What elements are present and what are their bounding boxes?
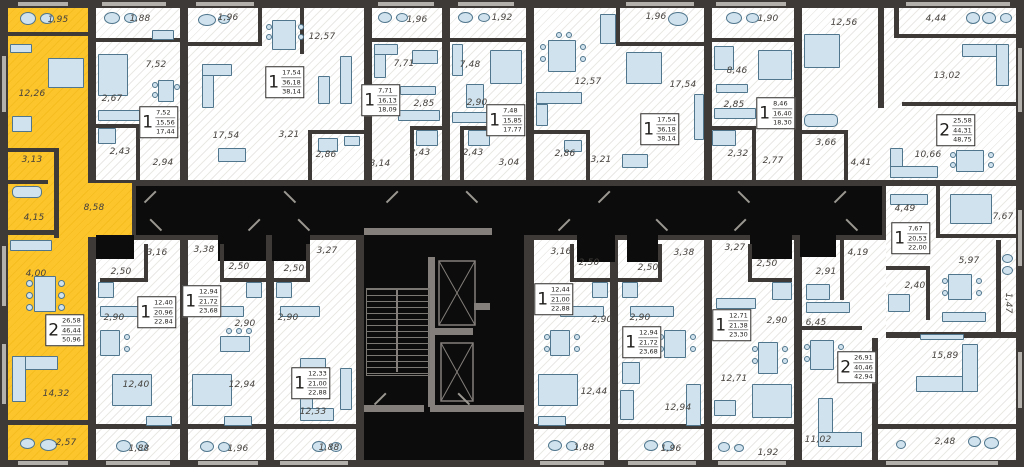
area-values: 12,7121,3823,30 bbox=[728, 311, 749, 339]
room-area-label: 2,50 bbox=[284, 264, 305, 274]
area-value: 12,40 bbox=[153, 298, 174, 308]
room-area-label: 12,57 bbox=[575, 77, 602, 87]
room-count: 1 bbox=[140, 300, 151, 324]
room-area-label: 8,58 bbox=[84, 203, 105, 213]
area-value: 17,77 bbox=[502, 125, 523, 134]
apartment-1room-k-info-box[interactable]: 112,9421,7223,68 bbox=[182, 285, 221, 317]
area-value: 17,54 bbox=[656, 115, 677, 125]
room-area-label: 4,19 bbox=[848, 248, 869, 258]
area-value: 21,38 bbox=[728, 321, 749, 331]
room-area-label: 2,43 bbox=[110, 147, 131, 157]
room-area-label: 12,57 bbox=[309, 32, 336, 42]
room-area-label: 2,91 bbox=[816, 267, 837, 277]
room-area-label: 2,50 bbox=[111, 267, 132, 277]
room-area-label: 17,54 bbox=[670, 80, 697, 90]
area-value: 22,88 bbox=[307, 388, 328, 397]
room-area-label: 2,43 bbox=[410, 148, 431, 158]
area-value: 26,91 bbox=[853, 353, 874, 363]
room-area-label: 2,86 bbox=[316, 150, 337, 160]
apartment-1room-l-info-box[interactable]: 112,3321,0022,88 bbox=[291, 367, 330, 399]
area-value: 38,14 bbox=[656, 134, 677, 143]
room-area-label: 2,94 bbox=[153, 158, 174, 168]
room-area-label: 14,32 bbox=[43, 389, 70, 399]
room-area-label: 3,04 bbox=[499, 158, 520, 168]
room-area-label: 3,27 bbox=[317, 246, 338, 256]
area-value: 48,75 bbox=[952, 135, 973, 144]
room-area-label: 7,48 bbox=[460, 60, 481, 70]
room-area-label: 12,56 bbox=[831, 18, 858, 28]
room-area-label: 12,33 bbox=[300, 407, 327, 417]
apartment-2room-a-info-box[interactable]: 225,5844,3148,75 bbox=[936, 114, 975, 146]
room-area-label: 3,16 bbox=[551, 247, 572, 257]
room-area-label: 3,21 bbox=[279, 130, 300, 140]
room-area-label: 5,97 bbox=[959, 256, 980, 266]
room-count: 2 bbox=[840, 355, 851, 379]
room-area-label: 12,94 bbox=[229, 380, 256, 390]
area-value: 7,67 bbox=[907, 224, 928, 234]
area-value: 20,96 bbox=[153, 308, 174, 318]
room-area-label: 2,85 bbox=[724, 100, 745, 110]
area-value: 23,68 bbox=[198, 306, 219, 315]
room-area-label: 2,90 bbox=[630, 313, 651, 323]
area-value: 18,30 bbox=[772, 118, 793, 127]
room-area-label: 2,40 bbox=[905, 281, 926, 291]
room-area-label: 2,90 bbox=[235, 319, 256, 329]
area-values: 7,5215,5617,44 bbox=[155, 108, 176, 136]
room-area-label: 2,67 bbox=[102, 94, 123, 104]
area-value: 21,00 bbox=[307, 379, 328, 389]
room-count: 1 bbox=[759, 101, 770, 125]
area-value: 20,53 bbox=[907, 234, 928, 244]
room-area-label: 2,50 bbox=[638, 263, 659, 273]
room-area-label: 4,49 bbox=[895, 204, 916, 214]
area-values: 7,4815,8517,77 bbox=[502, 106, 523, 134]
apartment-1room-b-info-box[interactable]: 117,5436,1838,14 bbox=[265, 66, 304, 98]
area-value: 15,85 bbox=[502, 116, 523, 126]
room-area-label: 1,92 bbox=[758, 448, 779, 458]
area-value: 16,13 bbox=[377, 96, 398, 106]
area-value: 18,09 bbox=[377, 105, 398, 114]
room-count: 1 bbox=[715, 313, 726, 337]
area-value: 50,96 bbox=[61, 335, 82, 344]
area-values: 8,4616,4018,30 bbox=[772, 99, 793, 127]
area-value: 7,71 bbox=[377, 86, 398, 96]
area-value: 16,40 bbox=[772, 109, 793, 119]
area-values: 25,5844,3148,75 bbox=[952, 116, 973, 144]
room-area-label: 2,90 bbox=[467, 98, 488, 108]
area-values: 12,4020,9622,84 bbox=[153, 298, 174, 326]
room-area-label: 6,45 bbox=[806, 318, 827, 328]
area-value: 21,72 bbox=[198, 297, 219, 307]
area-value: 21,72 bbox=[638, 338, 659, 348]
area-value: 40,46 bbox=[853, 363, 874, 373]
apartment-1room-m-info-box[interactable]: 112,4020,9622,84 bbox=[137, 296, 176, 328]
room-area-label: 2,90 bbox=[278, 313, 299, 323]
room-count: 2 bbox=[48, 318, 59, 342]
area-value: 7,48 bbox=[502, 106, 523, 116]
room-area-label: 1,88 bbox=[129, 444, 150, 454]
labels-layer: 1,9512,263,134,158,584,0014,322,57226,58… bbox=[0, 0, 1024, 467]
room-area-label: 8,46 bbox=[727, 66, 748, 76]
area-value: 15,56 bbox=[155, 118, 176, 128]
apartment-1room-g-info-box[interactable]: 17,6720,5322,00 bbox=[891, 222, 930, 254]
room-area-label: 2,86 bbox=[555, 149, 576, 159]
room-area-label: 7,71 bbox=[394, 59, 415, 69]
floor-plan: 1,9512,263,134,158,584,0014,322,57226,58… bbox=[0, 0, 1024, 467]
area-value: 21,00 bbox=[550, 295, 571, 305]
room-area-label: 2,85 bbox=[414, 99, 435, 109]
area-value: 25,58 bbox=[952, 116, 973, 126]
apartment-1room-j-info-box[interactable]: 112,9421,7223,68 bbox=[622, 326, 661, 358]
room-area-label: 2,50 bbox=[229, 262, 250, 272]
area-value: 17,54 bbox=[281, 68, 302, 78]
room-count: 1 bbox=[294, 371, 305, 395]
area-value: 12,33 bbox=[307, 369, 328, 379]
room-area-label: 3,66 bbox=[816, 138, 837, 148]
room-area-label: 12,71 bbox=[721, 374, 748, 384]
area-value: 38,14 bbox=[281, 87, 302, 96]
room-area-label: 2,48 bbox=[935, 437, 956, 447]
room-area-label: 1,96 bbox=[407, 15, 428, 25]
room-area-label: 1,96 bbox=[661, 444, 682, 454]
room-area-label: 3,21 bbox=[591, 155, 612, 165]
apartment-1room-d-info-box[interactable]: 17,4815,8517,77 bbox=[486, 104, 525, 136]
room-count: 1 bbox=[537, 287, 548, 311]
room-count: 1 bbox=[625, 330, 636, 354]
area-value: 22,84 bbox=[153, 317, 174, 326]
area-values: 12,9421,7223,68 bbox=[638, 328, 659, 356]
apartment-1room-i-info-box[interactable]: 112,4421,0022,88 bbox=[534, 283, 573, 315]
room-area-label: 10,66 bbox=[915, 150, 942, 160]
area-value: 17,44 bbox=[155, 127, 176, 136]
room-area-label: 1,92 bbox=[492, 13, 513, 23]
room-area-label: 1,96 bbox=[218, 13, 239, 23]
area-values: 12,3321,0022,88 bbox=[307, 369, 328, 397]
room-area-label: 3,38 bbox=[674, 248, 695, 258]
area-value: 26,58 bbox=[61, 316, 82, 326]
room-area-label: 1,47 bbox=[1003, 293, 1013, 314]
room-count: 1 bbox=[643, 117, 654, 141]
apartment-1room-f-info-box[interactable]: 18,4616,4018,30 bbox=[756, 97, 795, 129]
room-area-label: 1,90 bbox=[758, 14, 779, 24]
room-area-label: 3,38 bbox=[194, 245, 215, 255]
room-area-label: 2,32 bbox=[728, 149, 749, 159]
area-value: 23,68 bbox=[638, 347, 659, 356]
room-count: 2 bbox=[939, 118, 950, 142]
room-area-label: 1,96 bbox=[228, 444, 249, 454]
room-area-label: 1,96 bbox=[646, 12, 667, 22]
room-area-label: 12,44 bbox=[581, 387, 608, 397]
room-count: 1 bbox=[364, 88, 375, 112]
room-area-label: 2,43 bbox=[463, 148, 484, 158]
room-area-label: 17,54 bbox=[213, 131, 240, 141]
area-value: 22,88 bbox=[550, 304, 571, 313]
room-area-label: 2,90 bbox=[592, 315, 613, 325]
room-area-label: 15,89 bbox=[932, 351, 959, 361]
room-area-label: 7,67 bbox=[993, 212, 1014, 222]
area-value: 42,94 bbox=[853, 372, 874, 381]
area-value: 8,46 bbox=[772, 99, 793, 109]
area-value: 36,18 bbox=[656, 125, 677, 135]
apartment-1room-e-info-box[interactable]: 117,5436,1838,14 bbox=[640, 113, 679, 145]
room-area-label: 3,27 bbox=[725, 243, 746, 253]
room-area-label: 12,26 bbox=[19, 89, 46, 99]
area-value: 12,94 bbox=[198, 287, 219, 297]
area-value: 44,31 bbox=[952, 126, 973, 136]
room-area-label: 1,95 bbox=[48, 15, 69, 25]
room-count: 1 bbox=[894, 226, 905, 250]
room-area-label: 4,44 bbox=[926, 14, 947, 24]
room-area-label: 2,90 bbox=[104, 313, 125, 323]
apartment-2room-highlighted-info-box[interactable]: 226,5846,4450,96 bbox=[45, 314, 84, 346]
room-area-label: 1,88 bbox=[574, 443, 595, 453]
room-area-label: 4,00 bbox=[26, 269, 47, 279]
area-values: 12,4421,0022,88 bbox=[550, 285, 571, 313]
room-area-label: 4,15 bbox=[24, 213, 45, 223]
area-value: 12,71 bbox=[728, 311, 749, 321]
room-count: 1 bbox=[142, 110, 153, 134]
room-area-label: 11,02 bbox=[805, 435, 832, 445]
area-value: 46,44 bbox=[61, 326, 82, 336]
room-area-label: 2,50 bbox=[757, 259, 778, 269]
room-area-label: 7,52 bbox=[146, 60, 167, 70]
room-area-label: 3,14 bbox=[370, 159, 391, 169]
room-count: 1 bbox=[185, 289, 196, 313]
area-value: 22,00 bbox=[907, 243, 928, 252]
room-count: 1 bbox=[268, 70, 279, 94]
room-area-label: 12,40 bbox=[123, 380, 150, 390]
room-area-label: 3,16 bbox=[147, 248, 168, 258]
area-value: 12,94 bbox=[638, 328, 659, 338]
area-values: 17,5436,1838,14 bbox=[281, 68, 302, 96]
room-area-label: 2,50 bbox=[579, 258, 600, 268]
room-area-label: 4,41 bbox=[851, 158, 872, 168]
room-area-label: 3,13 bbox=[22, 155, 43, 165]
area-value: 36,18 bbox=[281, 78, 302, 88]
room-area-label: 2,77 bbox=[763, 156, 784, 166]
room-count: 1 bbox=[489, 108, 500, 132]
room-area-label: 2,90 bbox=[767, 316, 788, 326]
area-value: 7,52 bbox=[155, 108, 176, 118]
room-area-label: 1,88 bbox=[319, 443, 340, 453]
room-area-label: 2,57 bbox=[56, 438, 77, 448]
area-values: 7,7116,1318,09 bbox=[377, 86, 398, 114]
apartment-1room-h-info-box[interactable]: 112,7121,3823,30 bbox=[712, 309, 751, 341]
area-values: 7,6720,5322,00 bbox=[907, 224, 928, 252]
room-area-label: 1,88 bbox=[130, 14, 151, 24]
apartment-1room-c-info-box[interactable]: 17,7116,1318,09 bbox=[361, 84, 400, 116]
area-value: 12,44 bbox=[550, 285, 571, 295]
room-area-label: 12,94 bbox=[665, 403, 692, 413]
apartment-2room-b-info-box[interactable]: 226,9140,4642,94 bbox=[837, 351, 876, 383]
area-value: 23,30 bbox=[728, 330, 749, 339]
apartment-1room-a-info-box[interactable]: 17,5215,5617,44 bbox=[139, 106, 178, 138]
area-values: 26,5846,4450,96 bbox=[61, 316, 82, 344]
area-values: 17,5436,1838,14 bbox=[656, 115, 677, 143]
area-values: 12,9421,7223,68 bbox=[198, 287, 219, 315]
area-values: 26,9140,4642,94 bbox=[853, 353, 874, 381]
room-area-label: 13,02 bbox=[934, 71, 961, 81]
